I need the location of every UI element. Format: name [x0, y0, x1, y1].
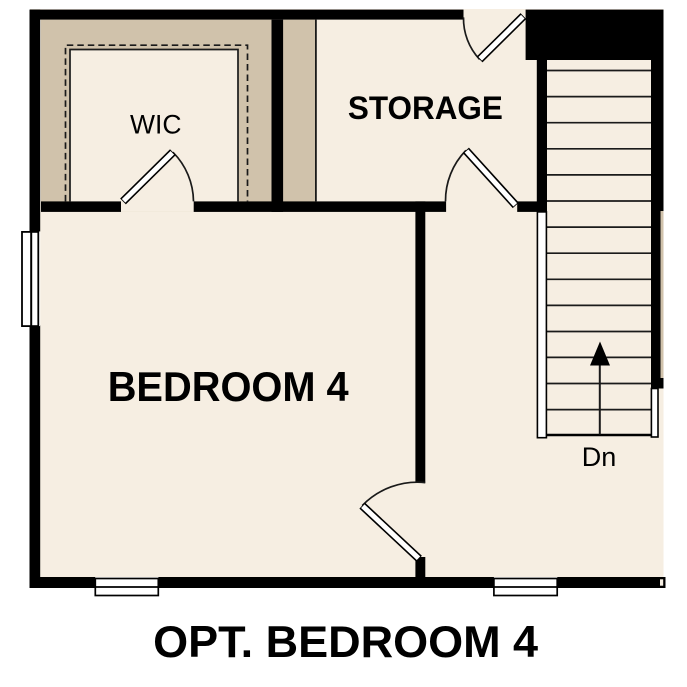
- svg-text:Dn: Dn: [582, 442, 617, 472]
- svg-text:OPT. BEDROOM 4: OPT. BEDROOM 4: [153, 618, 538, 667]
- svg-text:BEDROOM 4: BEDROOM 4: [108, 363, 350, 410]
- svg-text:STORAGE: STORAGE: [348, 90, 503, 126]
- svg-text:WIC: WIC: [130, 110, 182, 140]
